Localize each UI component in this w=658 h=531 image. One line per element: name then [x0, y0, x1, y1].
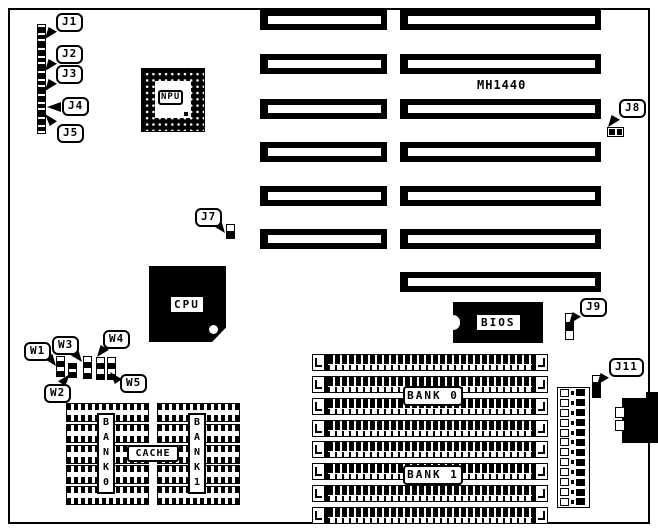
expansion-slot — [260, 54, 387, 74]
expansion-slot — [400, 10, 601, 30]
callout-w5: W5 — [120, 374, 147, 393]
din-connector-tab — [615, 420, 625, 431]
cpu-pin1-dot — [209, 325, 218, 334]
callout-j2: J2 — [56, 45, 83, 64]
power-connector — [557, 387, 590, 508]
npu-pin1-dot — [184, 112, 188, 116]
npu-label: NPU — [158, 90, 183, 105]
cpu-label: CPU — [171, 297, 203, 312]
jumper-w4-pins — [96, 358, 105, 380]
callout-j4: J4 — [62, 97, 89, 116]
jumper-j7-pins — [226, 225, 235, 239]
callout-j11: J11 — [609, 358, 644, 377]
expansion-slot — [260, 10, 387, 30]
npu-chip: NPU — [155, 81, 191, 118]
expansion-slot — [260, 186, 387, 206]
simm-socket — [312, 485, 548, 502]
cpu-chip: CPU — [149, 266, 226, 342]
callout-j3: J3 — [56, 65, 83, 84]
callout-j9: J9 — [580, 298, 607, 317]
bios-label: BIOS — [477, 315, 520, 330]
callout-j7: J7 — [195, 208, 222, 227]
npu-socket: NPU — [141, 68, 205, 132]
din-connector-tab — [615, 407, 625, 418]
expansion-slot — [400, 272, 601, 292]
simm-socket — [312, 354, 548, 371]
bios-chip: BIOS — [453, 302, 543, 343]
cache-bank1-vertical-label: BANK1 — [188, 413, 206, 494]
callout-j1: J1 — [56, 13, 83, 32]
callout-w4: W4 — [103, 330, 130, 349]
simm-socket — [312, 420, 548, 437]
motherboard-diagram: { "colors": { "ink": "#000000", "paper":… — [0, 0, 658, 531]
simm-socket — [312, 441, 548, 458]
pin-header-strip-j1-j5 — [37, 24, 46, 134]
callout-w3: W3 — [52, 336, 79, 355]
expansion-slot — [400, 142, 601, 162]
board-model-label: MH1440 — [477, 78, 526, 92]
bank0-label: BANK 0 — [403, 386, 463, 406]
jumper-w2-pins — [68, 364, 77, 378]
expansion-slot — [400, 54, 601, 74]
callout-j5: J5 — [57, 124, 84, 143]
cache-bank0-vertical-label: BANK0 — [97, 413, 115, 494]
jumper-j8-pins — [607, 127, 624, 137]
expansion-slot — [400, 99, 601, 119]
expansion-slot — [400, 186, 601, 206]
callout-j8: J8 — [619, 99, 646, 118]
expansion-slot — [260, 229, 387, 249]
callout-w2: W2 — [44, 384, 71, 403]
jumper-w3-pins — [83, 357, 92, 379]
jumper-w1-pins — [56, 357, 65, 377]
callout-w1: W1 — [24, 342, 51, 361]
cache-label: CACHE — [127, 445, 179, 462]
bank1-label: BANK 1 — [403, 465, 463, 485]
bios-notch — [453, 315, 460, 330]
expansion-slot — [400, 229, 601, 249]
expansion-slot — [260, 99, 387, 119]
din-keyboard-connector — [622, 398, 658, 443]
din-connector-step — [646, 392, 658, 399]
expansion-slot — [260, 142, 387, 162]
simm-socket — [312, 507, 548, 524]
